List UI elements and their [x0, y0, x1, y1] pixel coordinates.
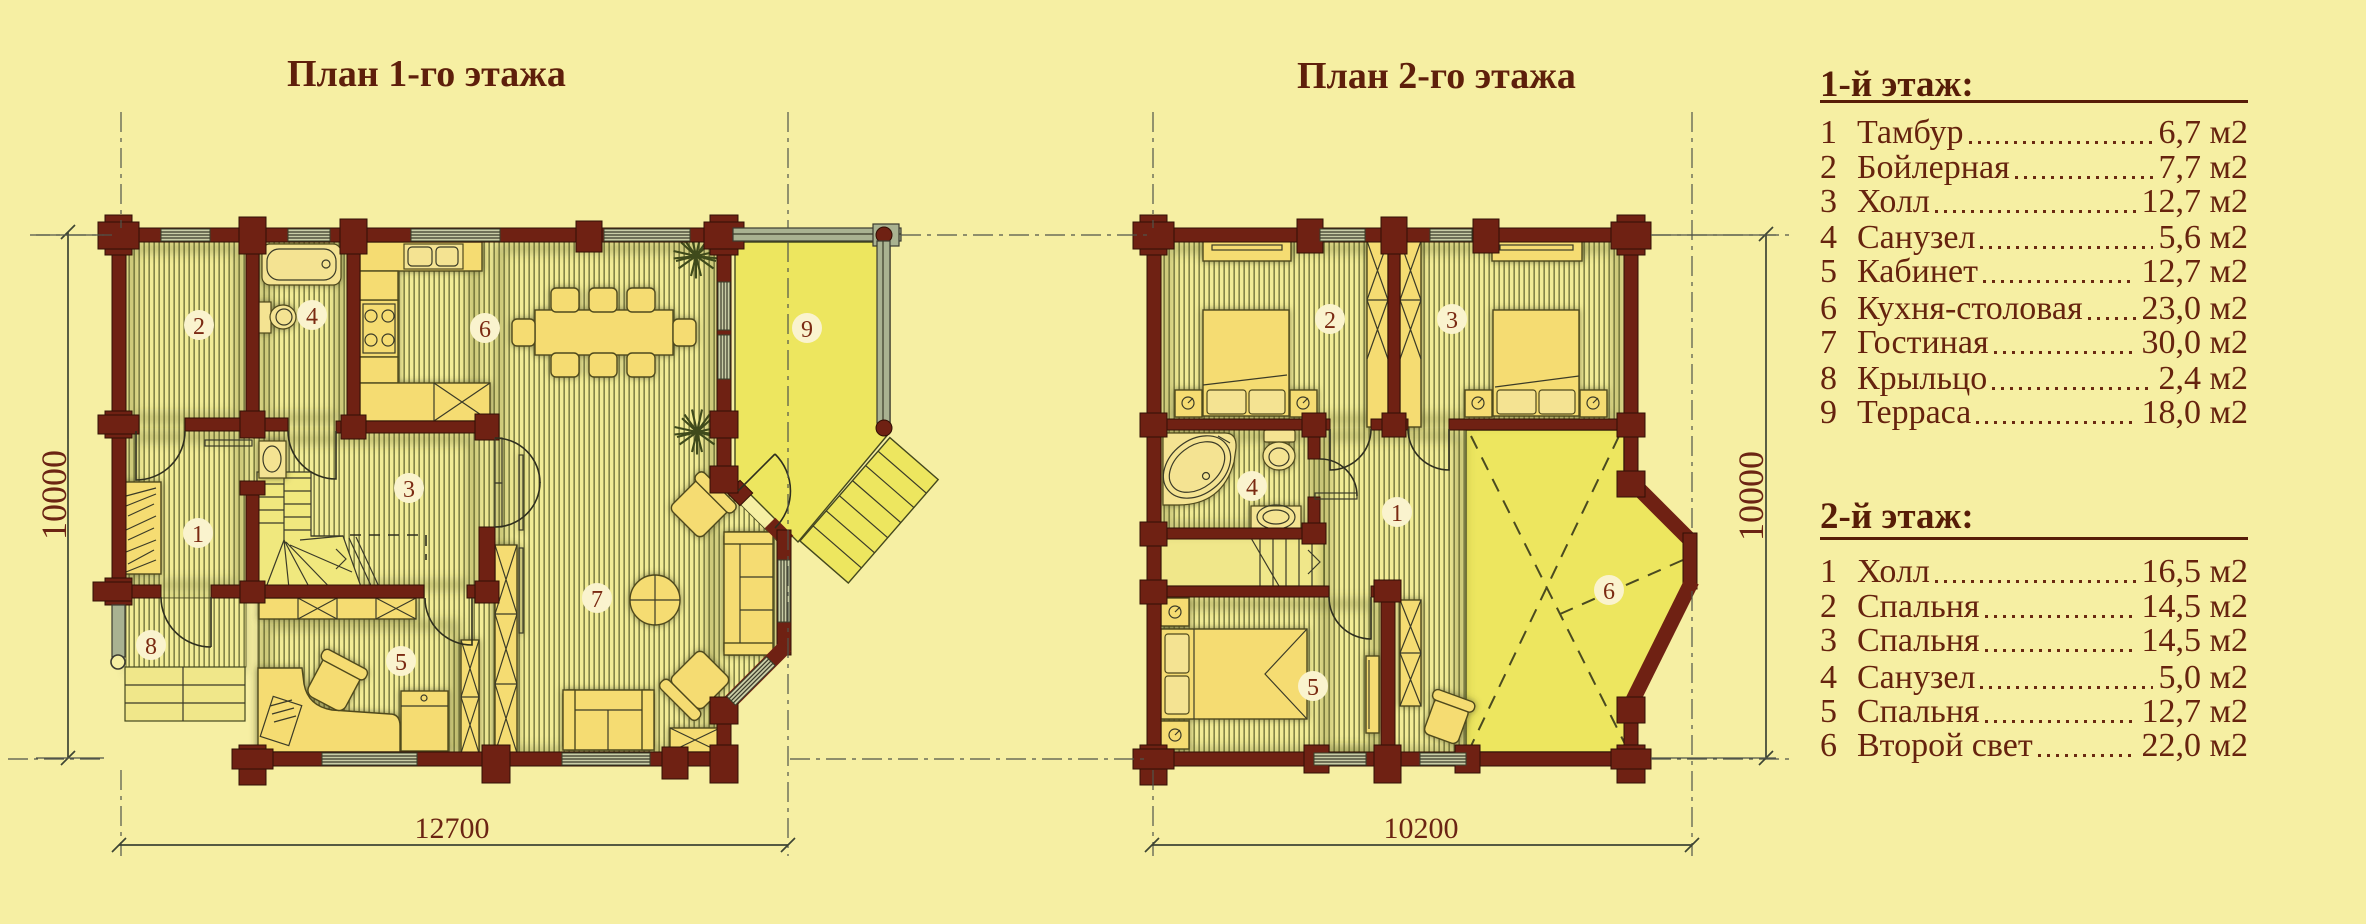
svg-text:1: 1 [192, 522, 204, 548]
svg-text:6: 6 [479, 317, 491, 343]
svg-text:1: 1 [1391, 501, 1403, 527]
svg-text:10200: 10200 [1384, 812, 1459, 845]
svg-text:5: 5 [1307, 675, 1319, 701]
svg-text:8: 8 [145, 634, 157, 660]
svg-text:10000: 10000 [1731, 451, 1771, 541]
svg-text:10000: 10000 [34, 450, 74, 540]
svg-text:12700: 12700 [415, 812, 490, 845]
svg-text:4: 4 [1246, 475, 1258, 501]
svg-text:9: 9 [801, 317, 813, 343]
svg-text:4: 4 [306, 304, 318, 330]
svg-text:6: 6 [1603, 579, 1615, 605]
svg-text:5: 5 [395, 650, 407, 676]
svg-text:2: 2 [1324, 308, 1336, 334]
svg-text:3: 3 [403, 477, 415, 503]
svg-text:2: 2 [193, 314, 205, 340]
svg-text:3: 3 [1446, 308, 1458, 334]
svg-text:7: 7 [591, 587, 603, 613]
